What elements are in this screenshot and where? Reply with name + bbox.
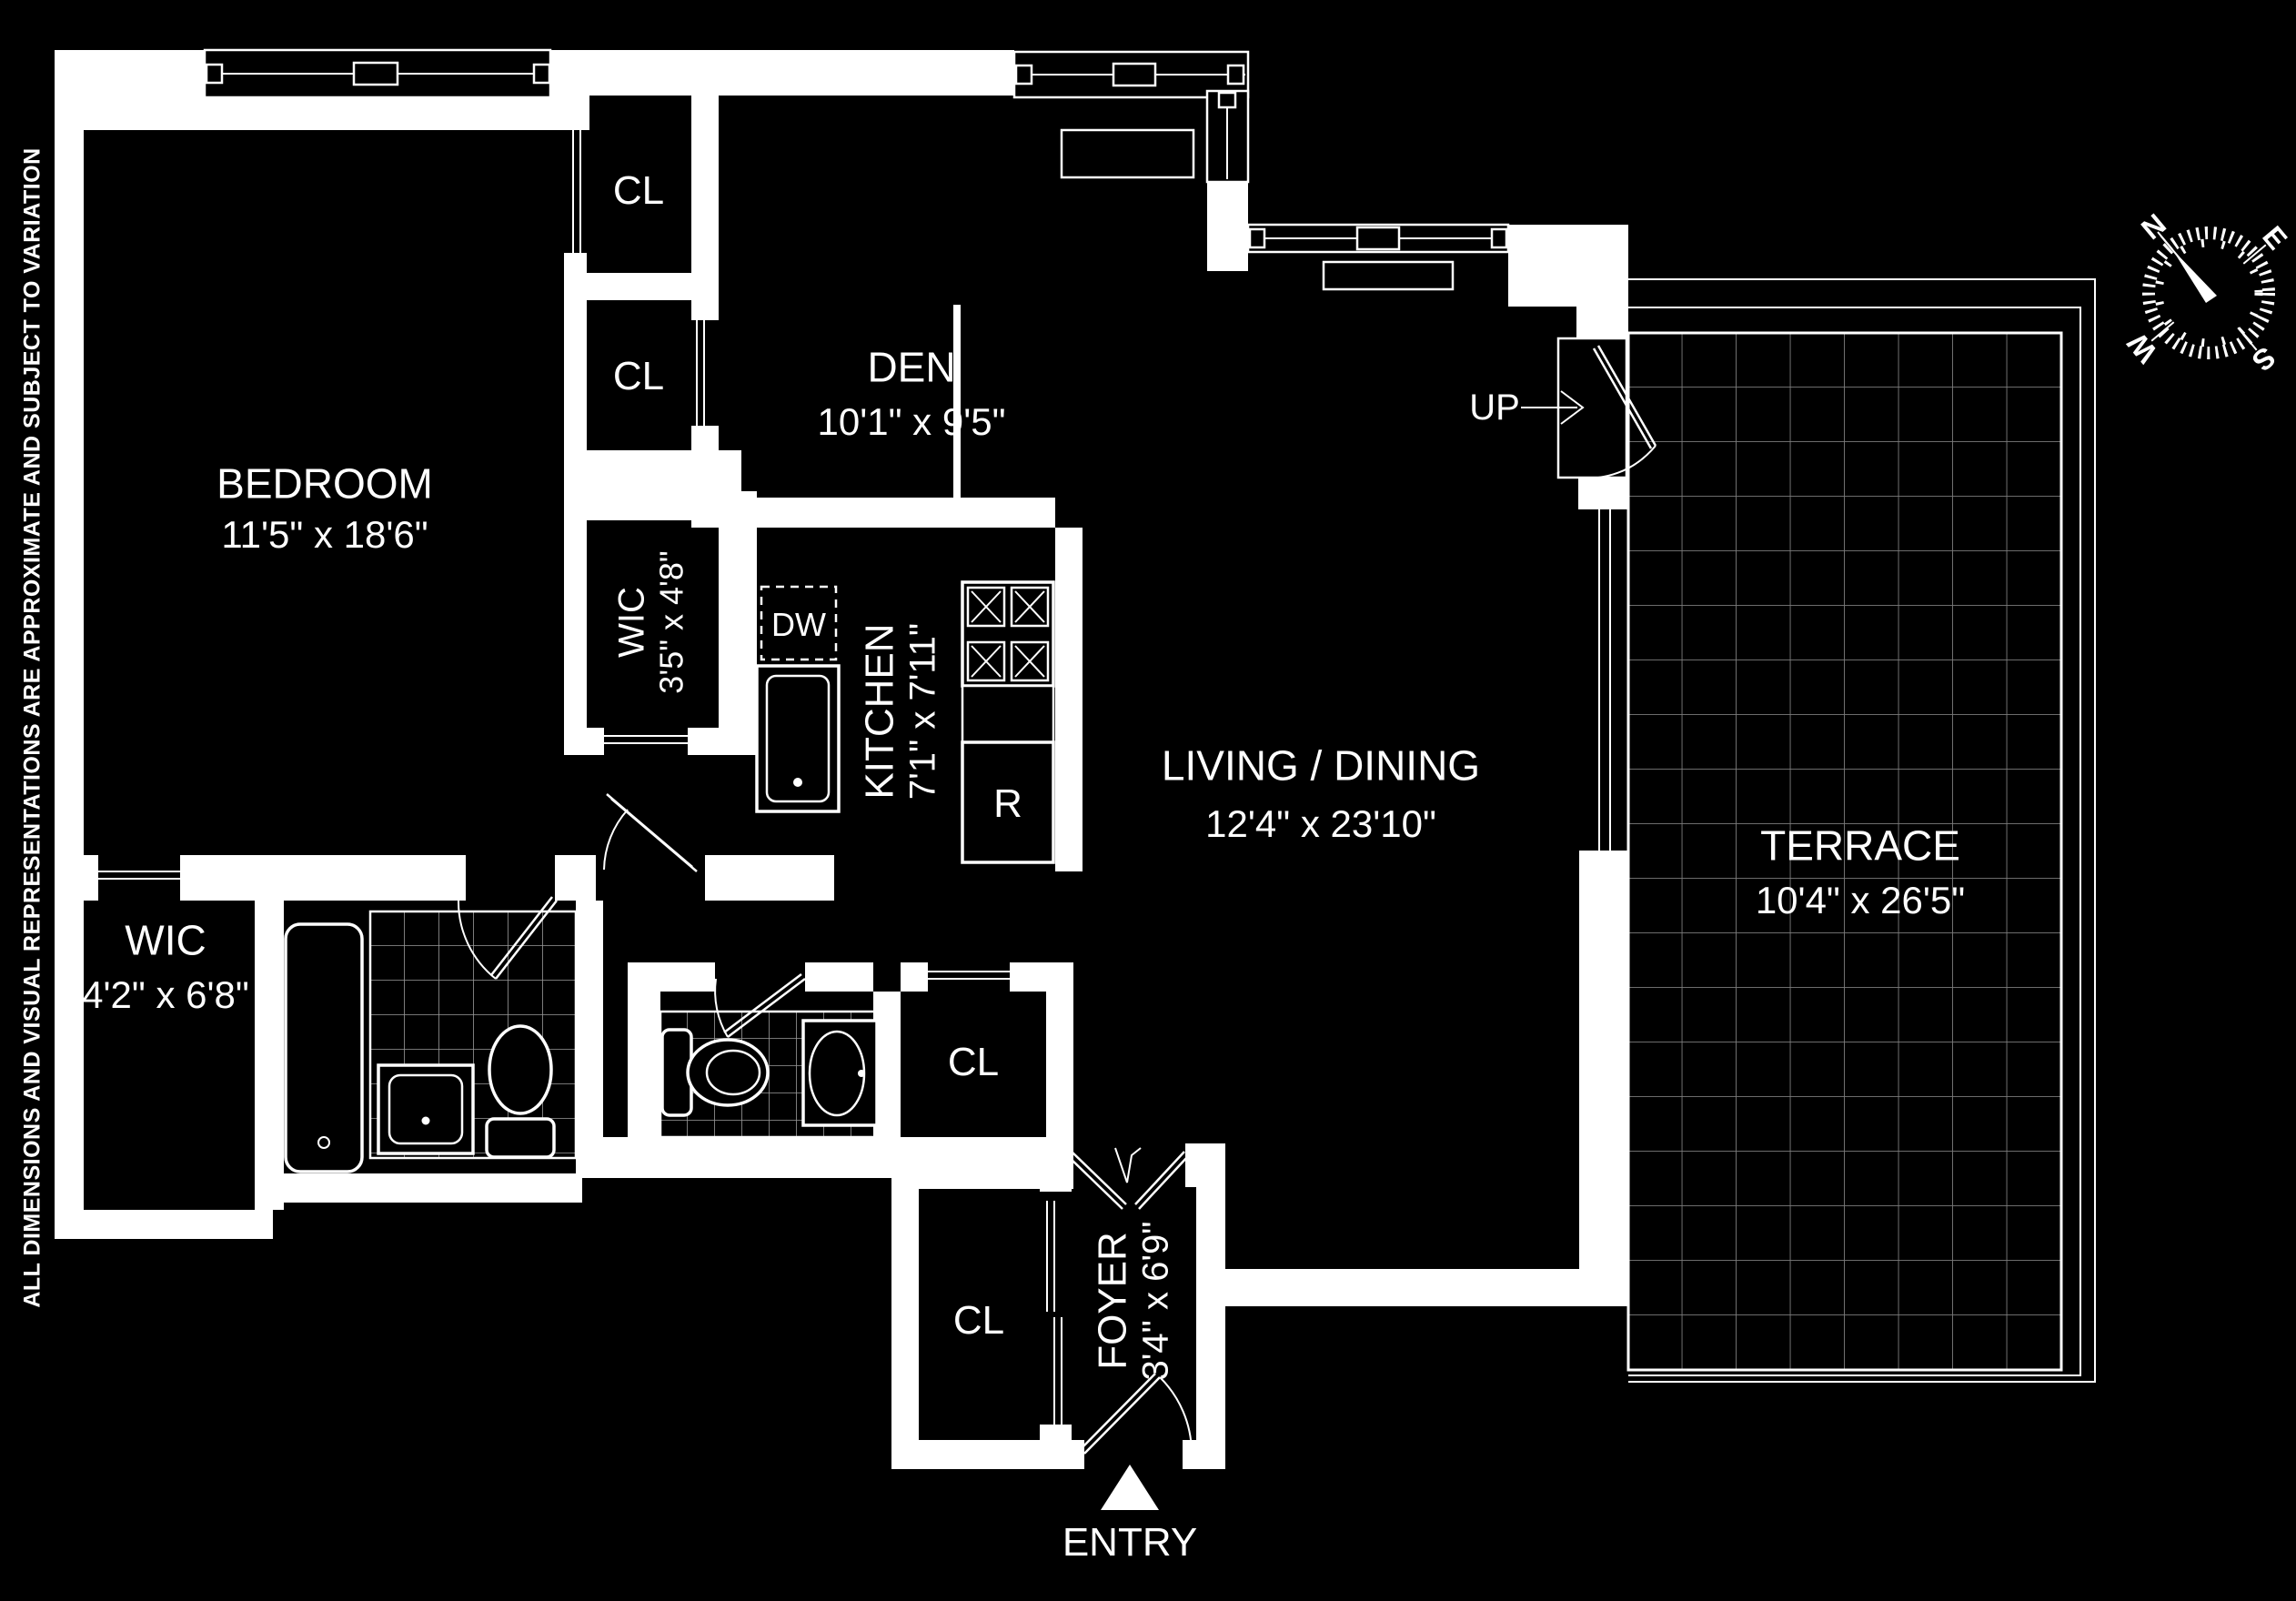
foyer-label-block: FOYER 3'4" x 6'9" — [1091, 1222, 1177, 1381]
entry-label: ENTRY — [1062, 1521, 1197, 1565]
living-label: LIVING / DINING — [1162, 743, 1480, 790]
closet-label-4: CL — [953, 1299, 1004, 1343]
closet-label-3: CL — [948, 1041, 999, 1084]
living-dimensions: 12'4" x 23'10" — [1205, 803, 1436, 845]
entry-arrow-icon — [1101, 1465, 1159, 1510]
stove-icon — [962, 582, 1053, 686]
floorplan: N E S W ALL DIMENSIONS AND VISUAL REPRES… — [0, 0, 2296, 1601]
compass-w: W — [2120, 327, 2164, 369]
wic-small-dimensions: 3'5" x 4'8" — [653, 550, 691, 693]
compass-s: S — [2246, 340, 2281, 378]
dishwasher-label: DW — [771, 607, 826, 643]
refrigerator-label: R — [993, 782, 1022, 826]
kitchen-counter — [962, 686, 1053, 742]
den-dimensions: 10'1" x 9'5" — [818, 401, 1006, 443]
up-label: UP — [1469, 388, 1520, 428]
wic-small-label: WIC — [612, 550, 653, 693]
kitchen-label: KITCHEN — [858, 623, 903, 800]
den-label: DEN — [867, 345, 955, 391]
compass-e: E — [2256, 220, 2293, 256]
compass-n: N — [2135, 207, 2172, 246]
master-toilet-icon — [487, 1026, 554, 1157]
kitchen-dimensions: 7'1" x 7'11" — [903, 623, 944, 800]
bathtub-icon — [286, 924, 362, 1172]
disclaimer-text: ALL DIMENSIONS AND VISUAL REPRESENTATION… — [20, 147, 45, 1307]
bedroom-dimensions: 11'5" x 18'6" — [221, 514, 428, 556]
wic-small-label-block: WIC 3'5" x 4'8" — [612, 550, 691, 693]
master-sink-icon — [378, 1065, 473, 1153]
kitchen-sink-icon — [757, 666, 839, 811]
closet-label-2: CL — [613, 355, 664, 398]
kitchen-label-block: KITCHEN 7'1" x 7'11" — [858, 623, 944, 800]
compass-rose-icon: N E S W — [2103, 187, 2296, 398]
second-sink-icon — [803, 1021, 877, 1125]
wic-large-dimensions: 4'2" x 6'8" — [82, 974, 249, 1016]
bedroom-label: BEDROOM — [217, 461, 433, 508]
closet-label-1: CL — [613, 169, 664, 213]
foyer-dimensions: 3'4" x 6'9" — [1136, 1222, 1177, 1381]
foyer-label: FOYER — [1091, 1222, 1136, 1381]
wic-large-label: WIC — [125, 918, 206, 964]
terrace-dimensions: 10'4" x 26'5" — [1756, 880, 1965, 921]
convector-unit — [1062, 130, 1453, 289]
living-window — [1248, 225, 1508, 252]
bedroom-window — [205, 50, 550, 97]
terrace-label: TERRACE — [1760, 823, 1960, 870]
